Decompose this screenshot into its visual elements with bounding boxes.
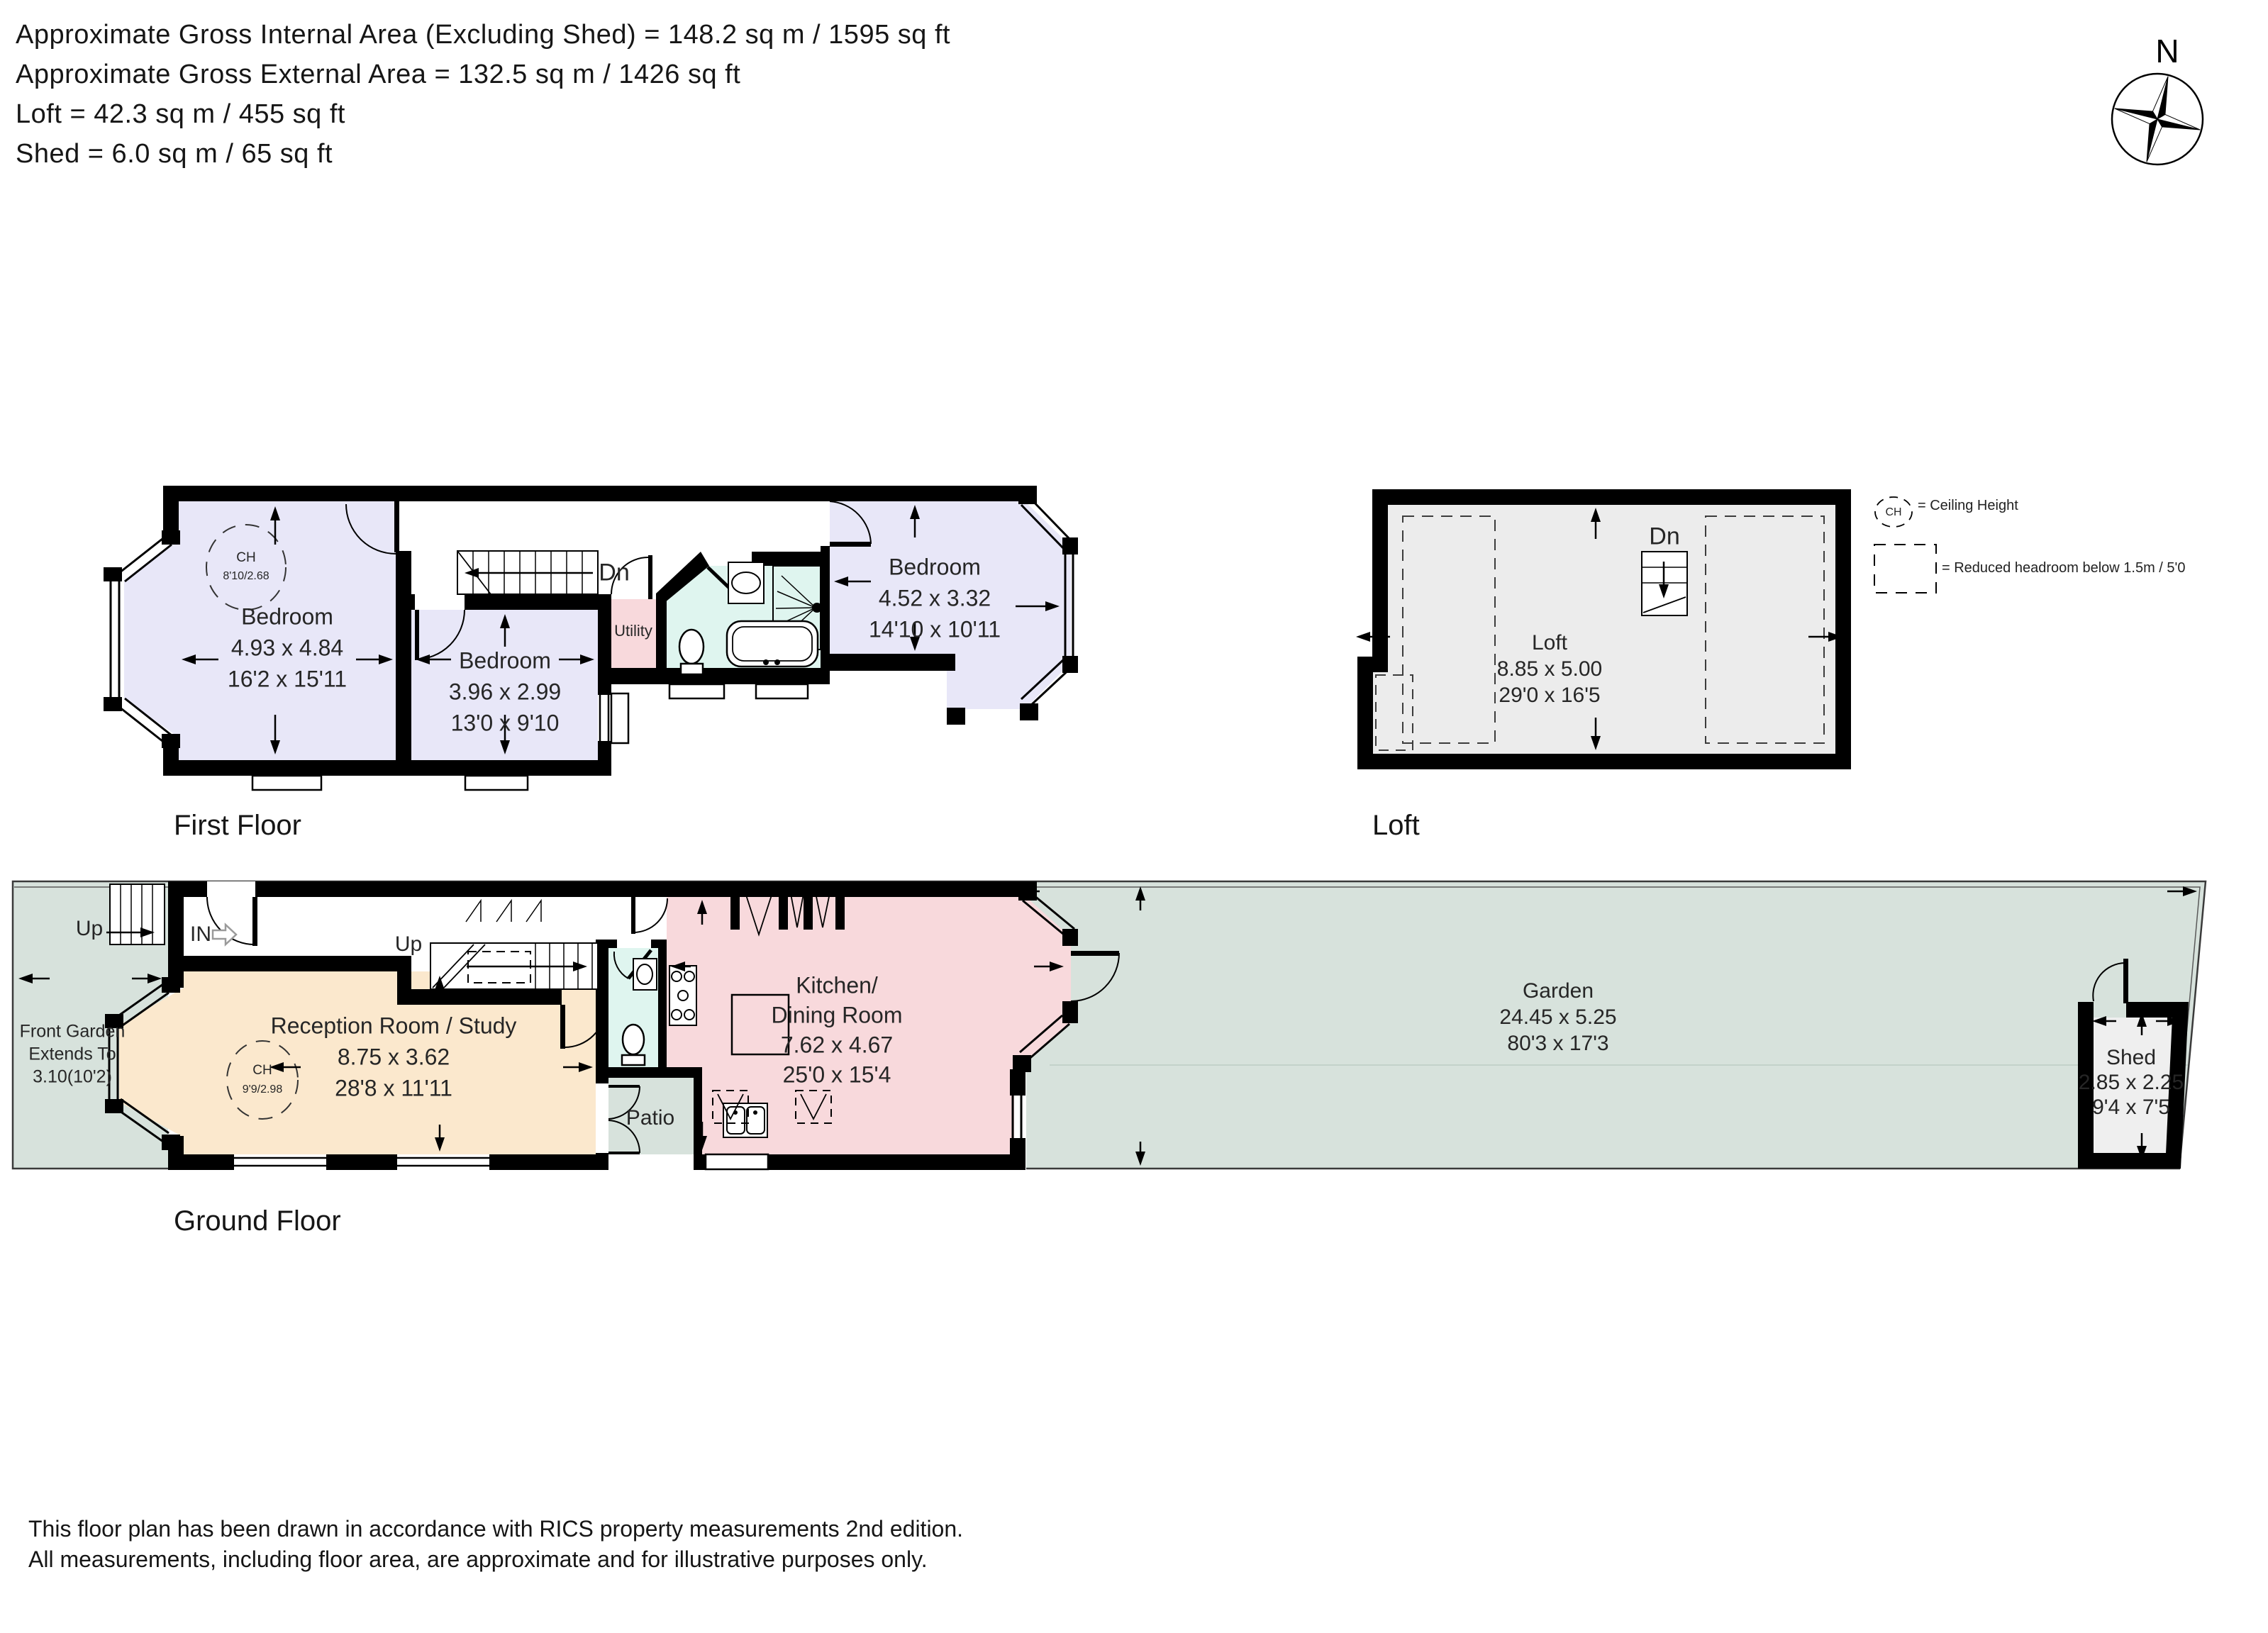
shed-label-imperial: 9'4 x 7'5 (2092, 1096, 2170, 1120)
floorplan-page: { "header": { "line1": "Approximate Gros… (0, 0, 2268, 1633)
compass-icon (2104, 66, 2211, 172)
patio-label: Patio (626, 1106, 674, 1130)
room-label-bedroom2-name: Bedroom (459, 648, 551, 674)
room-label-reception-imperial: 28'8 x 11'11 (335, 1076, 452, 1102)
caption-ground-floor: Ground Floor (174, 1205, 341, 1237)
front-steps-up-label: Up (76, 917, 103, 941)
reception-ch-value: 9'9/2.98 (243, 1083, 282, 1096)
ground-stairs-up-label: Up (395, 932, 422, 957)
footer-disclaimer-line2: All measurements, including floor area, … (28, 1546, 928, 1573)
header-shed-area: Shed = 6.0 sq m / 65 sq ft (16, 139, 333, 169)
legend-ch-text: = Ceiling Height (1918, 498, 2018, 514)
legend-ch-symbol: CH (1885, 506, 1901, 519)
room-label-loft-metric: 8.85 x 5.00 (1497, 657, 1602, 681)
room-label-kitchen-imperial: 25'0 x 15'4 (783, 1062, 891, 1088)
room-label-bedroom3-metric: 4.52 x 3.32 (879, 586, 991, 612)
bedroom1-ch-value: 8'10/2.68 (223, 570, 269, 583)
room-label-loft-imperial: 29'0 x 16'5 (1499, 684, 1600, 708)
room-label-utility: Utility (614, 622, 652, 640)
room-label-bedroom1-imperial: 16'2 x 15'11 (228, 667, 347, 693)
room-label-bedroom1-metric: 4.93 x 4.84 (231, 635, 343, 662)
floorplan-drawing (0, 0, 2268, 1633)
header-loft-area: Loft = 42.3 sq m / 455 sq ft (16, 99, 345, 130)
bedroom1-ch-symbol: CH (236, 550, 255, 566)
room-label-reception-name: Reception Room / Study (271, 1013, 517, 1040)
first-floor-stairs-dn-label: Dn (599, 559, 629, 587)
legend-reduced-headroom-text: = Reduced headroom below 1.5m / 5'0 (1942, 560, 2185, 576)
room-label-reception-metric: 8.75 x 3.62 (338, 1044, 450, 1071)
room-label-bedroom3-imperial: 14'10 x 10'11 (869, 617, 1001, 643)
room-label-bedroom2-imperial: 13'0 x 9'10 (451, 710, 560, 737)
loft (1357, 489, 1851, 769)
header-internal-area: Approximate Gross Internal Area (Excludi… (16, 20, 950, 50)
entrance-in-label: IN (190, 923, 211, 947)
footer-disclaimer-line1: This floor plan has been drawn in accord… (28, 1516, 963, 1542)
room-label-kitchen-metric: 7.62 x 4.67 (781, 1032, 893, 1059)
room-label-bedroom3-name: Bedroom (889, 554, 981, 581)
front-garden-label-line2: Extends To (28, 1044, 116, 1065)
reception-ch-symbol: CH (252, 1063, 272, 1079)
room-label-bedroom2-metric: 3.96 x 2.99 (449, 679, 561, 706)
caption-first-floor: First Floor (174, 810, 301, 842)
shed-label-name: Shed (2106, 1046, 2156, 1070)
front-garden-label-line3: 3.10(10'2) (33, 1067, 112, 1088)
shed-label-metric: 2.85 x 2.25 (2079, 1071, 2184, 1095)
loft-stairs-dn-label: Dn (1649, 523, 1679, 551)
room-label-loft-name: Loft (1532, 631, 1567, 655)
room-label-bedroom1-name: Bedroom (241, 604, 333, 630)
garden-label-imperial: 80'3 x 17'3 (1507, 1032, 1608, 1056)
room-label-kitchen-line1: Kitchen/ (796, 973, 878, 999)
header-external-area: Approximate Gross External Area = 132.5 … (16, 60, 740, 90)
caption-loft: Loft (1372, 810, 1420, 842)
room-label-kitchen-line2: Dining Room (772, 1003, 903, 1029)
compass-north-label: N (2155, 32, 2179, 70)
front-garden-label-line1: Front Garden (20, 1022, 126, 1042)
garden-label-name: Garden (1523, 979, 1594, 1003)
garden-label-metric: 24.45 x 5.25 (1499, 1005, 1616, 1030)
